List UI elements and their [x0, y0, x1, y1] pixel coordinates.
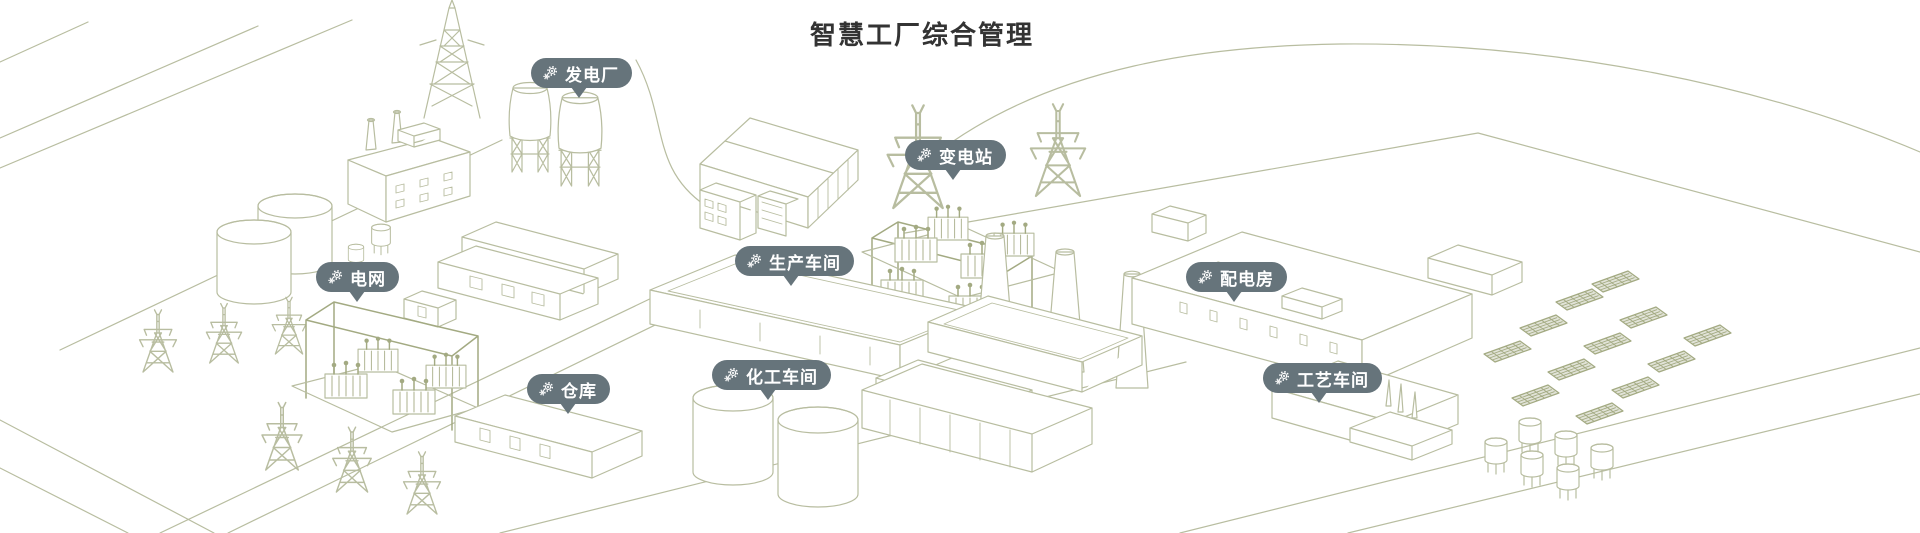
pin-label: 化工车间	[746, 363, 818, 388]
pin-label: 变电站	[939, 143, 993, 168]
page-title: 智慧工厂综合管理	[810, 15, 1034, 52]
smart-factory-canvas: 智慧工厂综合管理 发电厂 变电站 电网 生产车间 配电房 仓库 化工车间 工艺车…	[0, 0, 1920, 533]
warehouse-rows-drawing	[404, 222, 618, 327]
pin-label: 发电厂	[565, 61, 619, 86]
pin-label: 仓库	[561, 377, 597, 402]
lower-transmission-towers-drawing	[262, 403, 440, 515]
pin-substation[interactable]: 变电站	[905, 140, 1006, 170]
pin-production-workshop[interactable]: 生产车间	[735, 246, 854, 276]
pin-process-workshop[interactable]: 工艺车间	[1263, 363, 1382, 393]
central-factory-drawing	[700, 118, 858, 240]
pin-distribution-room[interactable]: 配电房	[1186, 262, 1287, 292]
pin-power-grid[interactable]: 电网	[316, 262, 399, 292]
transmission-towers-drawing	[140, 297, 306, 372]
gears-icon	[327, 269, 343, 285]
pin-label: 生产车间	[769, 249, 841, 274]
gears-icon	[1274, 370, 1290, 386]
pin-label: 电网	[350, 265, 386, 290]
factory-isometric-drawing	[0, 0, 1920, 533]
gears-icon	[538, 381, 554, 397]
gears-icon	[1197, 269, 1213, 285]
gears-icon	[542, 65, 558, 81]
hopper-tanks-drawing	[1485, 418, 1613, 500]
pin-warehouse[interactable]: 仓库	[527, 374, 610, 404]
power-plant-drawing	[509, 83, 602, 187]
gears-icon	[746, 253, 762, 269]
gears-icon	[723, 367, 739, 383]
pin-label: 工艺车间	[1297, 366, 1369, 391]
pin-label: 配电房	[1220, 265, 1274, 290]
radio-tower-drawing	[420, 0, 484, 118]
pin-power-plant[interactable]: 发电厂	[531, 58, 632, 88]
gears-icon	[916, 147, 932, 163]
distribution-building-drawing	[1132, 206, 1522, 386]
pin-chemical-workshop[interactable]: 化工车间	[712, 360, 831, 390]
warehouse-building-drawing	[455, 395, 642, 478]
boiler-house-drawing	[348, 111, 470, 223]
solar-array-drawing	[1484, 271, 1731, 424]
